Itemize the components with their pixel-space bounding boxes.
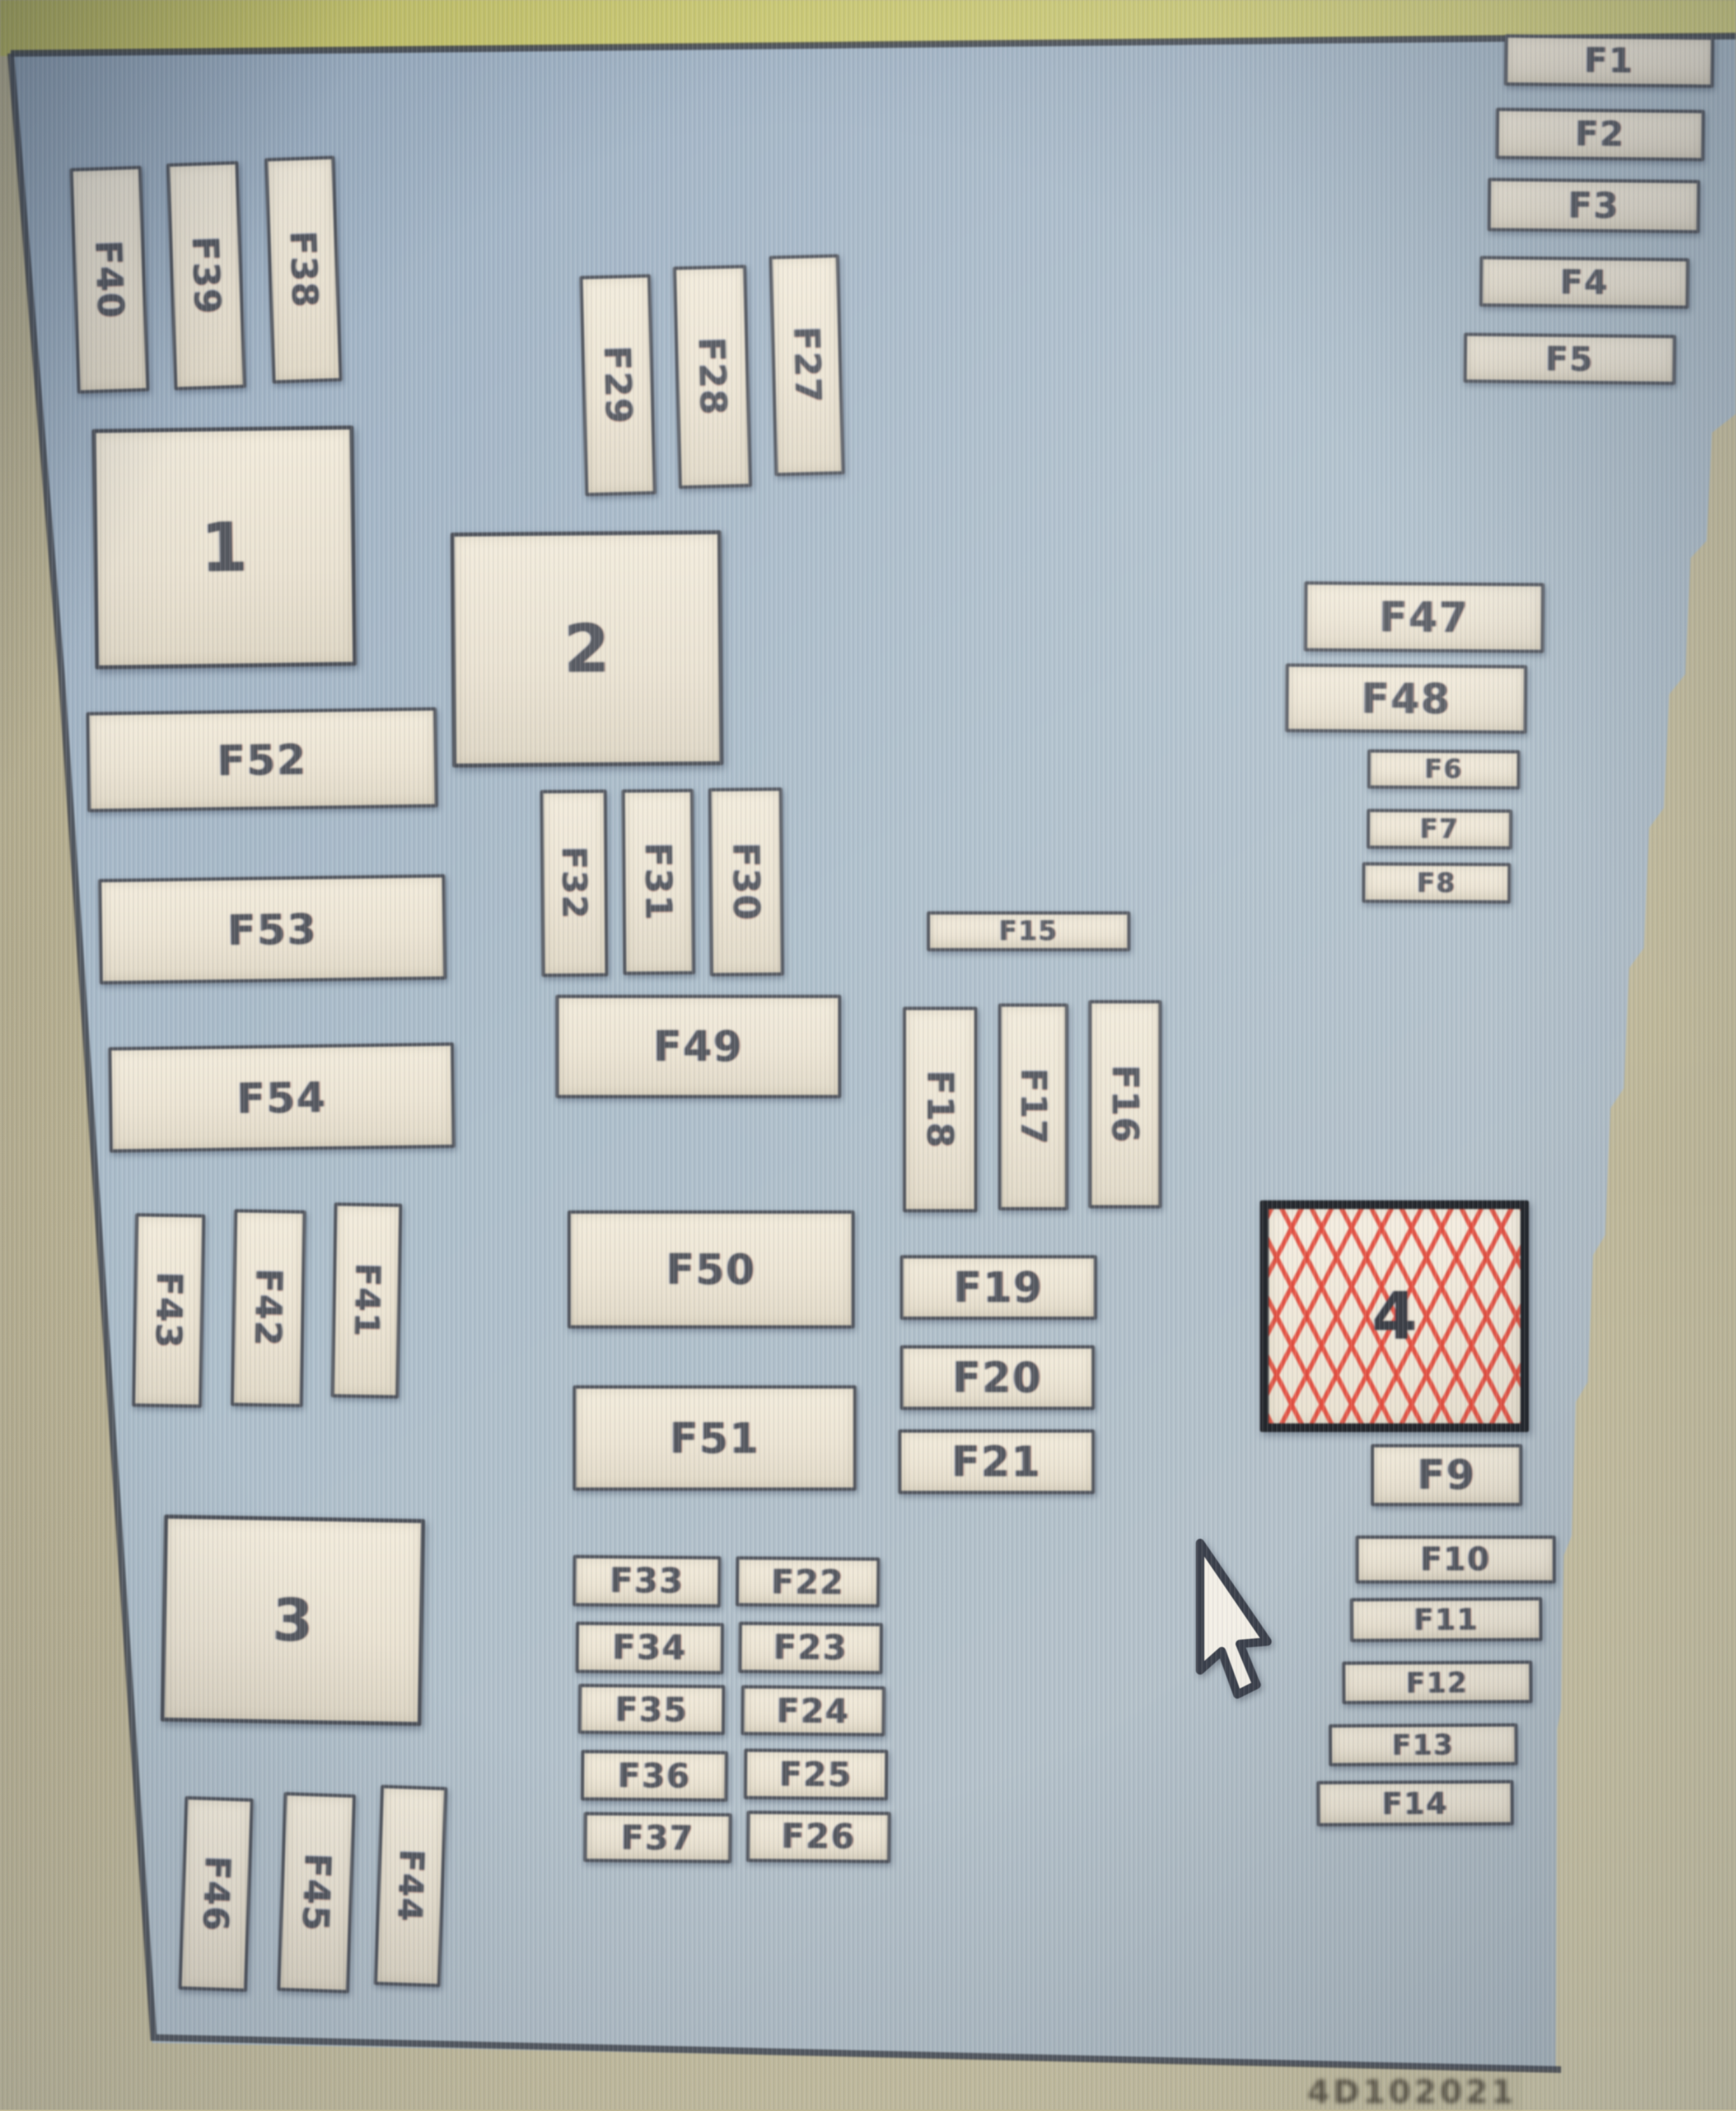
fuse-f7: F7 [1367,808,1512,849]
fuse-f30: F30 [708,788,784,977]
fuse-f42: F42 [230,1209,306,1407]
fuse-f6: F6 [1367,749,1520,789]
fuse-f11: F11 [1350,1597,1542,1642]
fuse-f13: F13 [1329,1723,1518,1766]
fuse-f18: F18 [903,1007,978,1212]
fuse-f14: F14 [1317,1780,1514,1827]
fuse-f27: F27 [769,254,845,477]
fuse-f51: F51 [573,1385,857,1491]
fuse-f32: F32 [540,790,608,977]
fuse-f35: F35 [578,1684,726,1735]
relay-box-3: 3 [160,1515,425,1726]
fuse-f2: F2 [1496,107,1705,161]
fuse-f39: F39 [166,161,246,391]
fuse-f9: F9 [1371,1444,1522,1506]
fuse-f53: F53 [98,874,447,984]
relay-box-4: 4 [1260,1200,1529,1432]
fuse-f41: F41 [331,1202,402,1399]
fuse-f3: F3 [1488,178,1701,233]
fuse-f19: F19 [900,1255,1097,1320]
fuse-f40: F40 [69,166,150,394]
fuse-f45: F45 [277,1792,356,1993]
fuse-f33: F33 [573,1555,722,1608]
mouse-cursor-icon [1166,1536,1287,1709]
fuse-f12: F12 [1342,1660,1532,1704]
fuse-f37: F37 [584,1812,732,1863]
fuse-f44: F44 [374,1785,447,1987]
fuse-f47: F47 [1304,581,1545,654]
fuse-f16: F16 [1088,1000,1162,1208]
fuse-f46: F46 [178,1796,254,1991]
photo-of-screen: F1F2F3F4F5F47F48F6F7F8F9F10F11F12F13F14F… [0,0,1736,2110]
fuse-f20: F20 [900,1345,1095,1410]
fuse-f49: F49 [556,995,841,1098]
fuse-f28: F28 [673,265,752,489]
fuse-f17: F17 [998,1003,1068,1210]
fuse-f31: F31 [622,789,695,975]
fuse-f34: F34 [576,1622,724,1674]
fuse-f22: F22 [736,1556,881,1608]
fuse-f36: F36 [581,1750,728,1802]
fuse-f52: F52 [86,707,438,812]
fuse-f54: F54 [108,1042,455,1152]
relay-box-1: 1 [92,425,357,669]
fuse-f1: F1 [1504,34,1715,87]
fuse-f5: F5 [1464,332,1677,385]
relay-box-2: 2 [450,530,723,768]
fuse-f8: F8 [1362,862,1511,903]
fuse-f25: F25 [744,1748,889,1801]
fuse-f21: F21 [898,1429,1095,1494]
fuse-f4: F4 [1480,256,1690,308]
fuse-f43: F43 [132,1213,205,1408]
fuse-f24: F24 [741,1685,886,1736]
diagram-reference-code: 4D102021 [1307,2074,1517,2111]
fuse-f29: F29 [580,274,657,497]
fuse-f15: F15 [927,911,1130,951]
fuse-f10: F10 [1355,1536,1556,1584]
fuse-f48: F48 [1285,664,1528,734]
fuse-f26: F26 [746,1811,891,1863]
fuse-f23: F23 [738,1622,883,1674]
fuse-f50: F50 [568,1210,855,1329]
fuse-f38: F38 [264,156,343,383]
